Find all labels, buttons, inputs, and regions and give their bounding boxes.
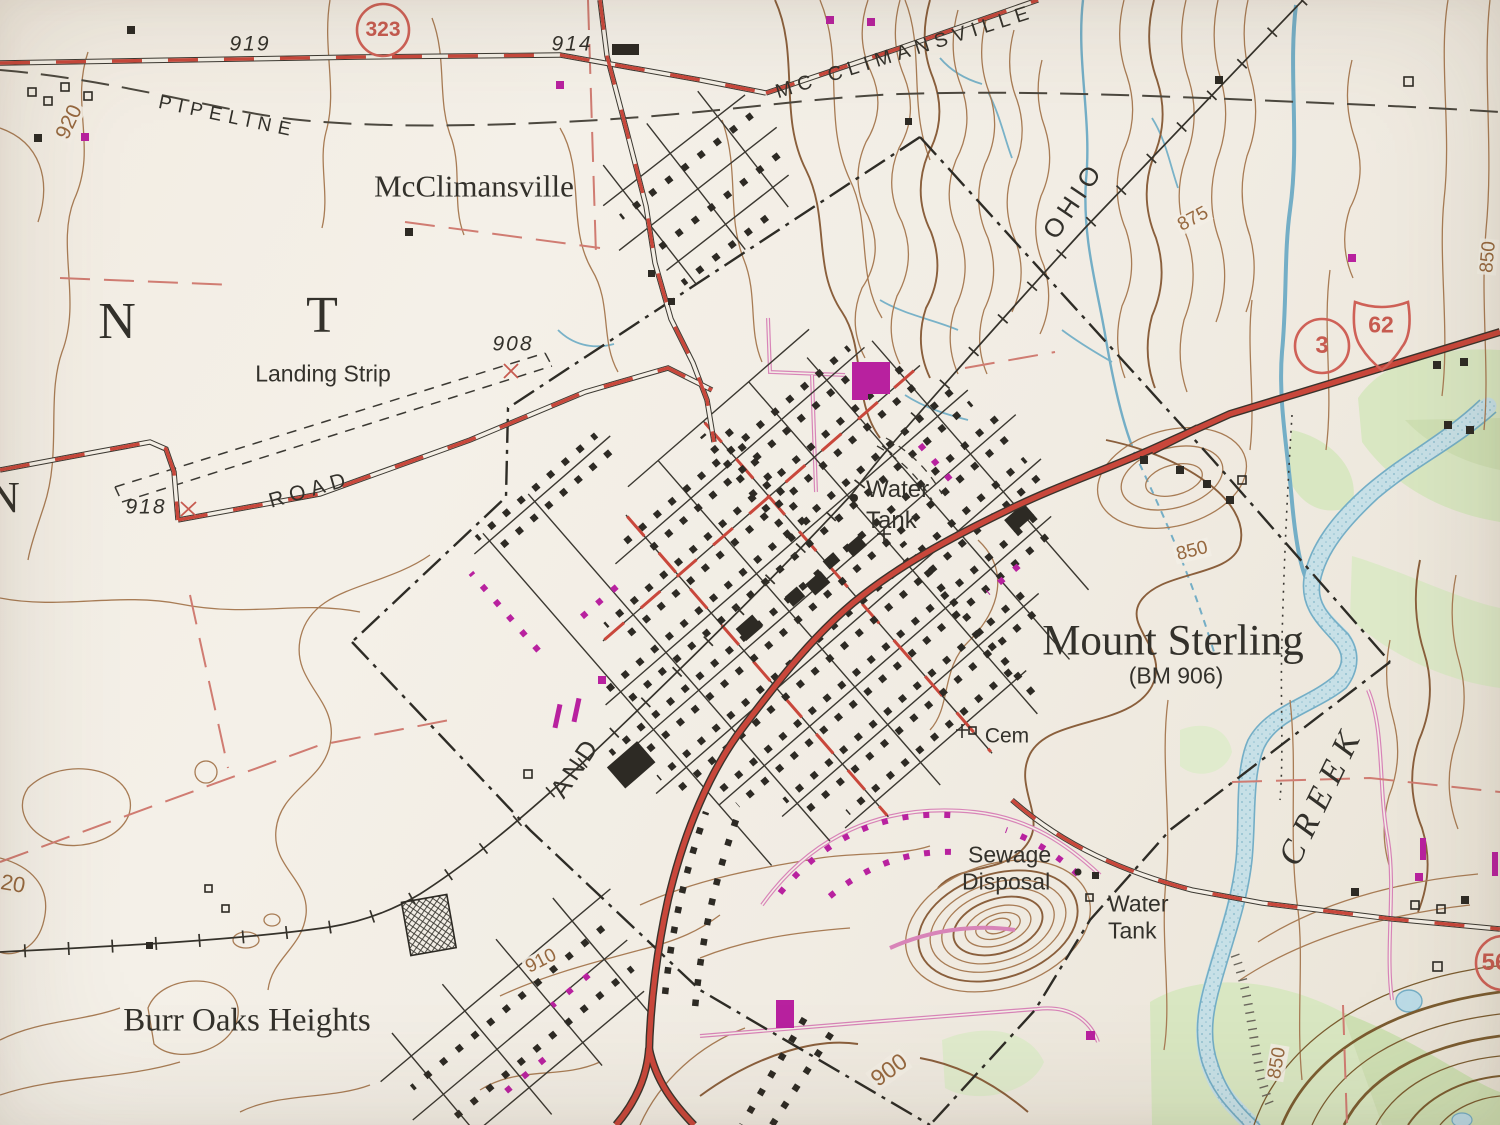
town-label-burr-oaks-heights: Burr Oaks Heights bbox=[123, 1005, 370, 1038]
route-shield-56: 56 bbox=[1482, 949, 1500, 977]
township-letter-n-edge: N bbox=[0, 476, 20, 520]
cemetery-label: Cem bbox=[985, 726, 1029, 747]
spot-elevation-918: 918 bbox=[125, 497, 166, 518]
water-tank-north-label-line1: Water bbox=[866, 478, 929, 502]
township-letter-n: N bbox=[98, 296, 136, 348]
spot-elevation-914: 914 bbox=[551, 34, 592, 55]
contour-label-850-topright: 850 bbox=[1477, 238, 1499, 275]
contour-lines bbox=[0, 0, 1500, 1125]
water-tank-south-label-line2: Tank bbox=[1108, 920, 1157, 943]
photorevised-roads-inner bbox=[700, 318, 1392, 1042]
route-shield-323: 323 bbox=[365, 18, 400, 42]
benchmark-label: (BM 906) bbox=[1129, 665, 1224, 688]
water-tank-north-label-line2: Tank bbox=[866, 509, 917, 533]
route-shield-3: 3 bbox=[1315, 332, 1328, 360]
topo-map: McClimansville Mount Sterling (BM 906) B… bbox=[0, 0, 1500, 1125]
sewage-disposal-label-line1: Sewage bbox=[968, 844, 1051, 867]
water-tank-south-label-line1: Water bbox=[1108, 893, 1169, 916]
township-letter-t: T bbox=[306, 290, 338, 342]
contour-label-920-partial: 20 bbox=[0, 871, 29, 898]
map-linework bbox=[0, 0, 1500, 1125]
spot-elevation-908: 908 bbox=[492, 334, 533, 355]
sewage-disposal-label-line2: Disposal bbox=[962, 871, 1050, 894]
landing-strip-label: Landing Strip bbox=[255, 363, 391, 386]
route-shield-62: 62 bbox=[1368, 312, 1394, 339]
secondary-roads bbox=[0, 0, 1500, 929]
town-label-mount-sterling: Mount Sterling bbox=[1042, 620, 1304, 663]
spot-elevation-919: 919 bbox=[229, 34, 270, 55]
main-highway bbox=[616, 332, 1500, 1125]
town-label-mcclimansville: McClimansville bbox=[374, 171, 574, 202]
railroad bbox=[0, 0, 1303, 952]
section-lines bbox=[0, 0, 1500, 1125]
photorevised-roads bbox=[700, 318, 1392, 1042]
